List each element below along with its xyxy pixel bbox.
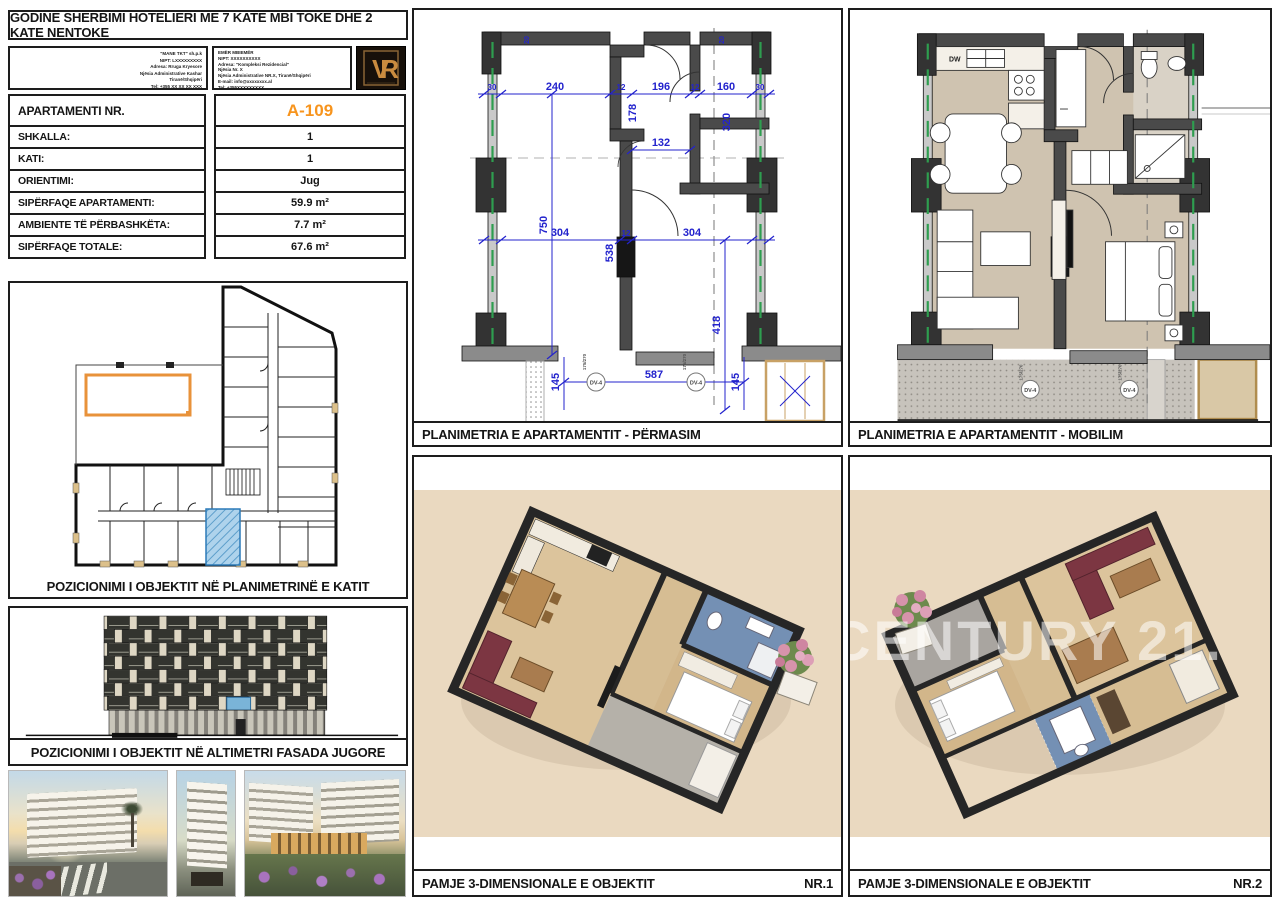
key-plan-drawing (10, 283, 406, 571)
spec-label-orientimi: ORIENTIMI: (8, 169, 206, 193)
facade-caption: POZICIONIMI I OBJEKTIT NË ALTIMETRI FASA… (31, 745, 385, 760)
spec-value-apartment: A-109 (214, 94, 406, 127)
svg-text:175/270: 175/270 (1117, 364, 1122, 381)
spec-label-siperfaqe-apartamenti: SIPËRFAQE APARTAMENTI: (8, 191, 206, 215)
svg-text:304: 304 (683, 227, 702, 239)
door-mark: 175/270 (682, 353, 687, 370)
door-mark: 175/270 (582, 353, 587, 370)
spec-label-ambiente: AMBIENTE TË PËRBASHKËTA: (8, 213, 206, 237)
view3d-nr1-drawing (414, 490, 841, 837)
spec-value-siperfaqe-apartamenti: 59.9 m² (214, 191, 406, 215)
key-plan-caption: POZICIONIMI I OBJEKTIT NË PLANIMETRINË E… (10, 579, 406, 594)
century21-watermark: CENTURY 21. (850, 608, 1270, 673)
svg-text:538: 538 (604, 244, 616, 262)
view3d-nr2-background: CENTURY 21. (850, 490, 1270, 837)
company-right-line: Tel: +355XXXXXXXXX (218, 85, 311, 91)
svg-text:20: 20 (719, 36, 726, 44)
svg-text:30: 30 (488, 83, 497, 92)
plan-permasim-caption: PLANIMETRIA E APARTAMENTIT - PËRMASIM (422, 427, 701, 442)
svg-text:750: 750 (538, 216, 550, 234)
svg-text:DV-4: DV-4 (1024, 388, 1036, 394)
spec-label-siperfaqe-totale: SIPËRFAQE TOTALE: (8, 235, 206, 259)
svg-text:12: 12 (622, 229, 631, 238)
svg-text:304: 304 (551, 227, 570, 239)
lit-ground-floor (271, 833, 367, 855)
spec-value-ambiente: 7.7 m² (214, 213, 406, 237)
render-photo-garden (244, 770, 406, 897)
flower-bed (9, 866, 61, 896)
company-info-left: "MANE TKT" sh.p.k NIPT: LXXXXXXXXX Adres… (8, 46, 208, 90)
logo-letters: VR (372, 54, 399, 84)
architectural-sheet: GODINE SHERBIMI HOTELIERI ME 7 KATE MBI … (0, 0, 1280, 905)
render-photo-street (8, 770, 168, 897)
plan-permasim-panel: 30 240 12 196 12 160 30 178 320 750 132 … (412, 8, 843, 447)
flower-meadow (245, 854, 405, 896)
spec-value-siperfaqe-totale: 67.6 m² (214, 235, 406, 259)
spec-label-kati: KATI: (8, 147, 206, 171)
view3d-nr2-number: NR.2 (1233, 876, 1262, 891)
view3d-nr1-number: NR.1 (804, 876, 833, 891)
plan-permasim-drawing: 30 240 12 196 12 160 30 178 320 750 132 … (414, 10, 841, 421)
company-info-right: EMËR MBIEMËR NIPT: XXXXXXXXXX Adresa: "K… (212, 46, 352, 90)
window-tag: DV-4 (690, 381, 703, 387)
facade-drawing (10, 608, 406, 738)
facade-panel: POZICIONIMI I OBJEKTIT NË ALTIMETRI FASA… (8, 606, 408, 766)
render-photo-corner (176, 770, 236, 897)
svg-text:175/270: 175/270 (1018, 364, 1023, 381)
facade-highlighted-unit (227, 697, 251, 710)
svg-text:418: 418 (711, 316, 723, 334)
spec-value-orientimi: Jug (214, 169, 406, 193)
sheet-title: GODINE SHERBIMI HOTELIERI ME 7 KATE MBI … (10, 10, 406, 40)
svg-text:196: 196 (652, 81, 670, 93)
dishwasher-label: DW (949, 56, 961, 63)
company-left-line: Tel: +355 XX XX XX XXX (140, 84, 202, 91)
spec-value-kati: 1 (214, 147, 406, 171)
firm-logo: VR (356, 46, 406, 90)
firm-logo-monogram-icon: VR (357, 47, 405, 89)
view3d-nr1-background (414, 490, 841, 837)
spec-label-shkalla: SHKALLA: (8, 125, 206, 149)
plan-mobilim-drawing: DW DV-4 DV-4 175/270 175/270 (850, 10, 1270, 421)
pool-outline (86, 375, 190, 415)
highlighted-unit (206, 509, 240, 565)
svg-text:178: 178 (627, 104, 639, 122)
svg-text:145: 145 (550, 373, 562, 391)
svg-text:132: 132 (652, 137, 670, 149)
view3d-nr1-panel: PAMJE 3-DIMENSIONALE E OBJEKTIT NR.1 (412, 455, 843, 897)
window-tag: DV-4 (590, 381, 603, 387)
view3d-nr1-caption: PAMJE 3-DIMENSIONALE E OBJEKTIT (422, 876, 655, 891)
svg-text:587: 587 (645, 369, 663, 381)
building-render (187, 782, 227, 869)
plan-mobilim-caption: PLANIMETRIA E APARTAMENTIT - MOBILIM (858, 427, 1123, 442)
svg-text:30: 30 (756, 83, 765, 92)
spec-label-apartment: APARTAMENTI NR. (8, 94, 206, 127)
view3d-nr2-panel: CENTURY 21. PAMJE 3-DIMENSIONALE E OBJEK… (848, 455, 1272, 897)
courtyard (76, 362, 223, 465)
building-render (27, 788, 137, 858)
key-plan-panel: POZICIONIMI I OBJEKTIT NË PLANIMETRINË E… (8, 281, 408, 599)
view3d-nr2-caption: PAMJE 3-DIMENSIONALE E OBJEKTIT (858, 876, 1091, 891)
svg-text:145: 145 (730, 373, 742, 391)
svg-text:12: 12 (691, 83, 700, 92)
sheet-title-box: GODINE SHERBIMI HOTELIERI ME 7 KATE MBI … (8, 10, 408, 40)
svg-text:320: 320 (721, 113, 733, 131)
plan-mobilim-panel: DW DV-4 DV-4 175/270 175/270 PLANIMETRIA… (848, 8, 1272, 447)
svg-text:DV-4: DV-4 (1123, 388, 1135, 394)
svg-text:160: 160 (717, 81, 735, 93)
svg-text:12: 12 (617, 83, 626, 92)
spec-value-shkalla: 1 (214, 125, 406, 149)
svg-text:20: 20 (524, 36, 531, 44)
